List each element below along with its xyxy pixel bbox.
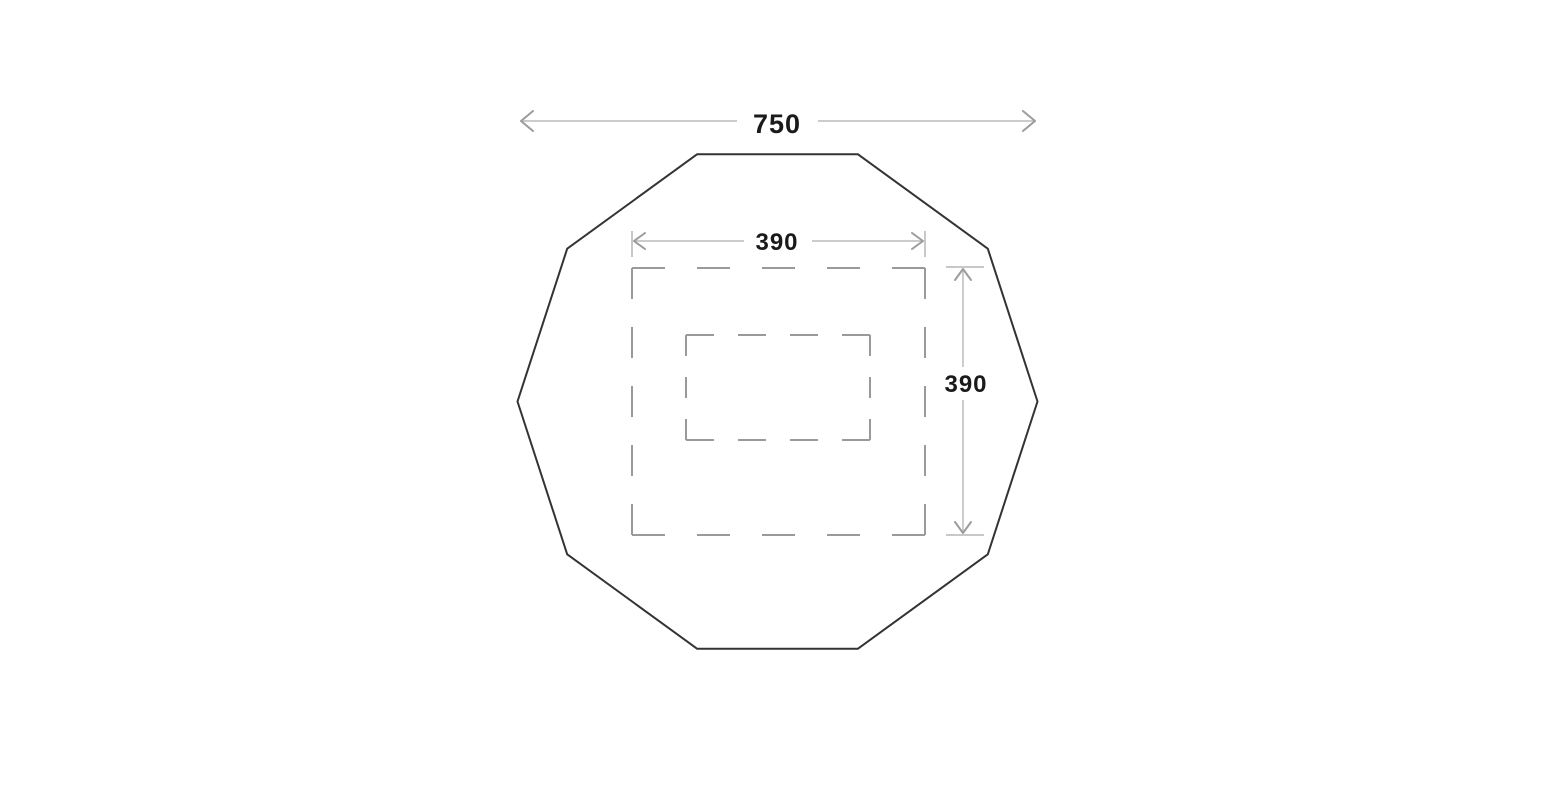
dimension-390-vertical: 390 bbox=[944, 267, 987, 535]
dimension-390-horizontal: 390 bbox=[632, 229, 925, 257]
dimension-label-750: 750 bbox=[753, 109, 801, 139]
dimension-label-390-width: 390 bbox=[755, 229, 798, 256]
inner-dashed-rect bbox=[686, 335, 870, 440]
dimension-750-horizontal: 750 bbox=[521, 109, 1035, 139]
outer-dashed-square bbox=[632, 268, 925, 535]
dimension-label-390-height: 390 bbox=[944, 371, 987, 398]
dimension-diagram: 750 390 390 bbox=[0, 0, 1544, 796]
diagram-canvas: 750 390 390 bbox=[0, 0, 1544, 796]
